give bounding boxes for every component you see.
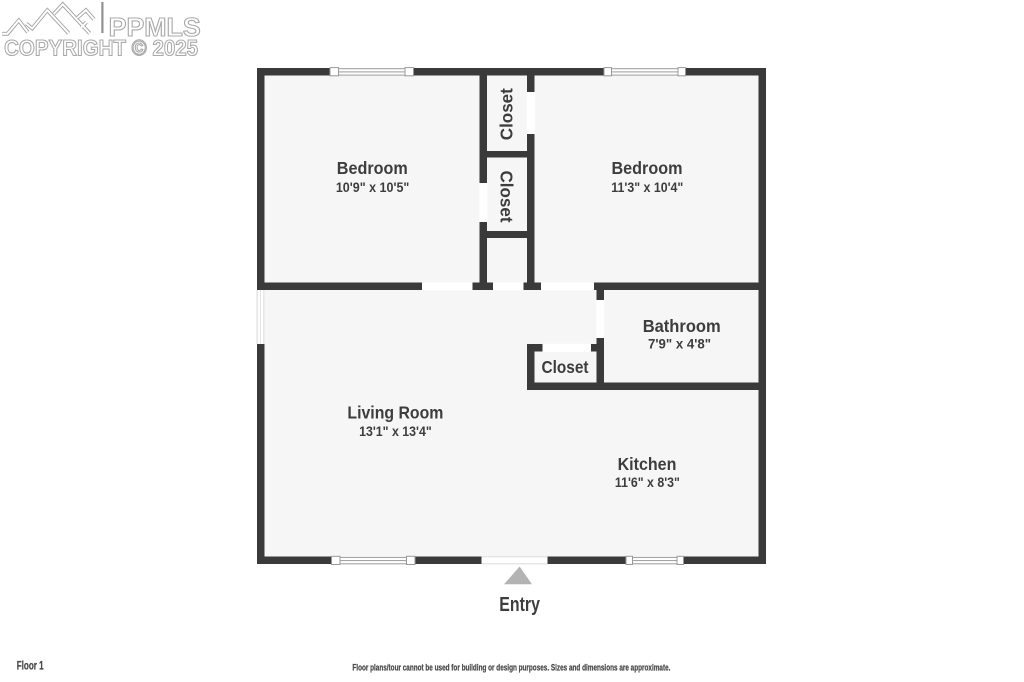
svg-text:Bedroom: Bedroom [612,158,683,178]
svg-text:COPYRIGHT © 2025: COPYRIGHT © 2025 [4,35,198,60]
svg-text:Kitchen: Kitchen [618,454,677,474]
svg-text:Bedroom: Bedroom [337,158,408,178]
svg-text:Entry: Entry [499,594,540,616]
svg-text:Bathroom: Bathroom [643,316,721,336]
svg-text:Closet: Closet [496,171,516,223]
svg-text:7'9" x 4'8": 7'9" x 4'8" [648,336,711,352]
svg-text:Closet: Closet [496,88,516,140]
svg-text:11'3" x 10'4": 11'3" x 10'4" [611,179,683,195]
svg-text:Living Room: Living Room [347,403,443,423]
svg-text:Closet: Closet [542,357,589,377]
svg-text:Floor plans/tour cannot be use: Floor plans/tour cannot be used for buil… [352,663,670,673]
svg-text:Floor 1: Floor 1 [17,658,44,672]
svg-text:13'1" x 13'4": 13'1" x 13'4" [359,423,432,439]
svg-text:10'9" x 10'5": 10'9" x 10'5" [336,179,410,195]
svg-text:11'6" x 8'3": 11'6" x 8'3" [615,474,680,490]
